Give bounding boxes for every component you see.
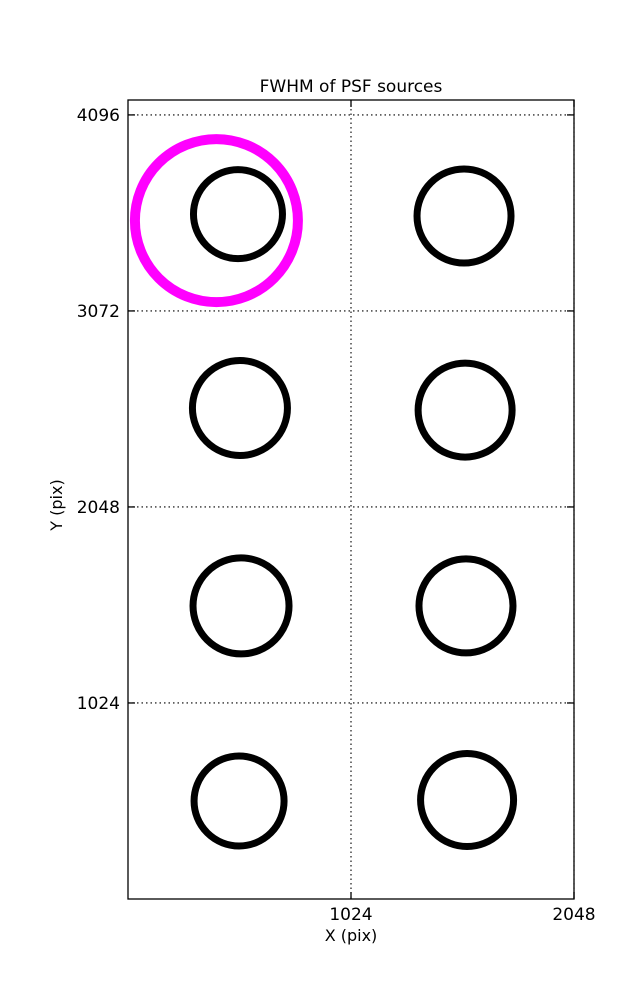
y-tick-label: 3072 [77, 302, 120, 322]
psf-sources-marker [418, 363, 512, 457]
figure-canvas: 102420483072409610242048 FWHM of PSF sou… [0, 0, 637, 1000]
psf-sources-marker [192, 360, 287, 455]
x-tick-label: 1024 [329, 905, 372, 925]
psf-sources-marker [421, 754, 514, 847]
psf-sources-marker [194, 756, 284, 846]
y-axis-label: Y (pix) [47, 479, 66, 531]
highlighted-source-marker [135, 139, 298, 302]
series-layer [135, 139, 514, 846]
tick-labels-layer: 102420483072409610242048 [77, 106, 596, 925]
psf-sources-marker [419, 559, 513, 653]
x-tick-label: 2048 [552, 905, 595, 925]
y-tick-label: 2048 [77, 498, 120, 518]
psf-sources-marker [417, 169, 511, 263]
psf-fwhm-chart: 102420483072409610242048 FWHM of PSF sou… [0, 0, 637, 1000]
x-axis-label: X (pix) [325, 926, 378, 945]
y-tick-label: 1024 [77, 694, 120, 714]
y-tick-label: 4096 [77, 106, 120, 126]
psf-sources-marker [193, 558, 289, 654]
psf-sources-marker [193, 170, 282, 259]
chart-title: FWHM of PSF sources [260, 77, 443, 97]
